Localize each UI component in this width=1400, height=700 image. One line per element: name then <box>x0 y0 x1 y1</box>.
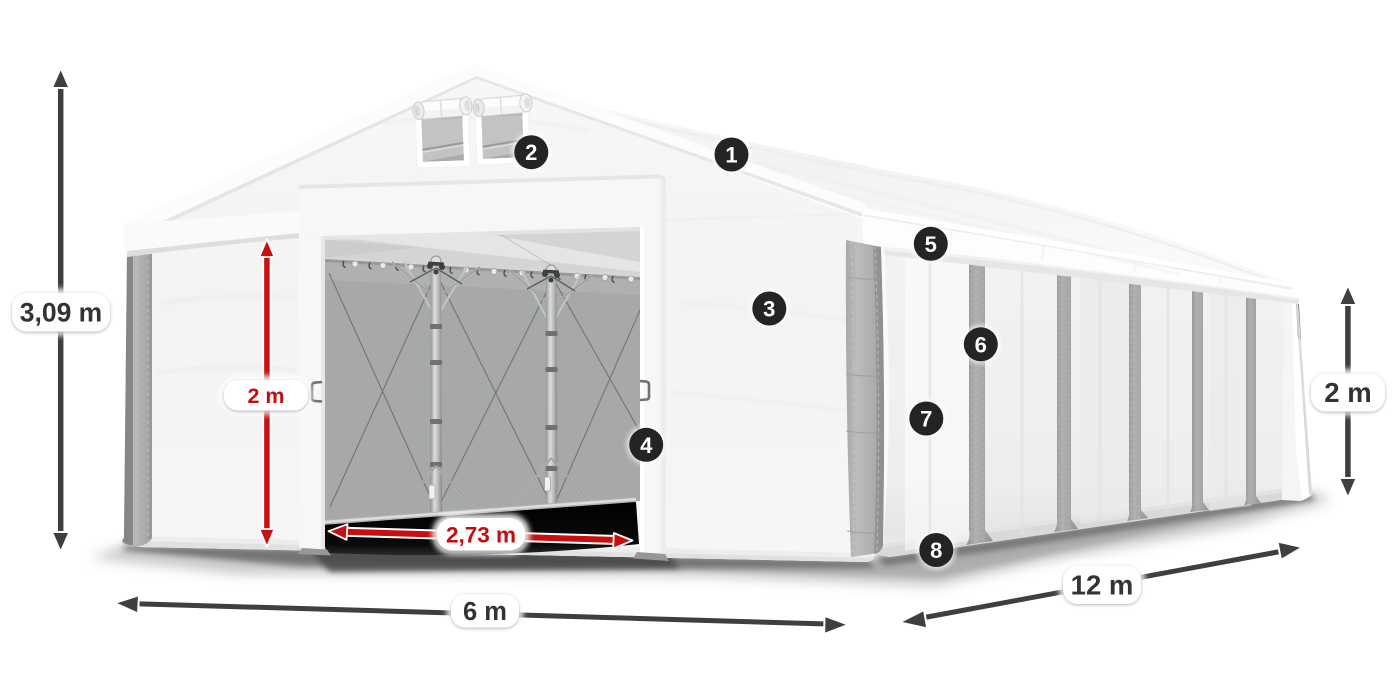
svg-text:8: 8 <box>930 538 942 563</box>
svg-text:12 m: 12 m <box>1071 570 1134 601</box>
svg-text:1: 1 <box>725 143 737 168</box>
svg-text:3,09 m: 3,09 m <box>20 298 103 328</box>
svg-text:5: 5 <box>925 232 937 257</box>
svg-text:6: 6 <box>975 332 987 357</box>
svg-text:3: 3 <box>763 297 775 322</box>
svg-text:2,73 m: 2,73 m <box>446 523 516 548</box>
svg-text:2 m: 2 m <box>247 384 284 408</box>
svg-text:6 m: 6 m <box>463 598 507 626</box>
svg-text:4: 4 <box>640 433 653 458</box>
svg-text:2 m: 2 m <box>1324 377 1371 408</box>
svg-text:2: 2 <box>525 140 537 165</box>
svg-text:7: 7 <box>920 407 932 432</box>
